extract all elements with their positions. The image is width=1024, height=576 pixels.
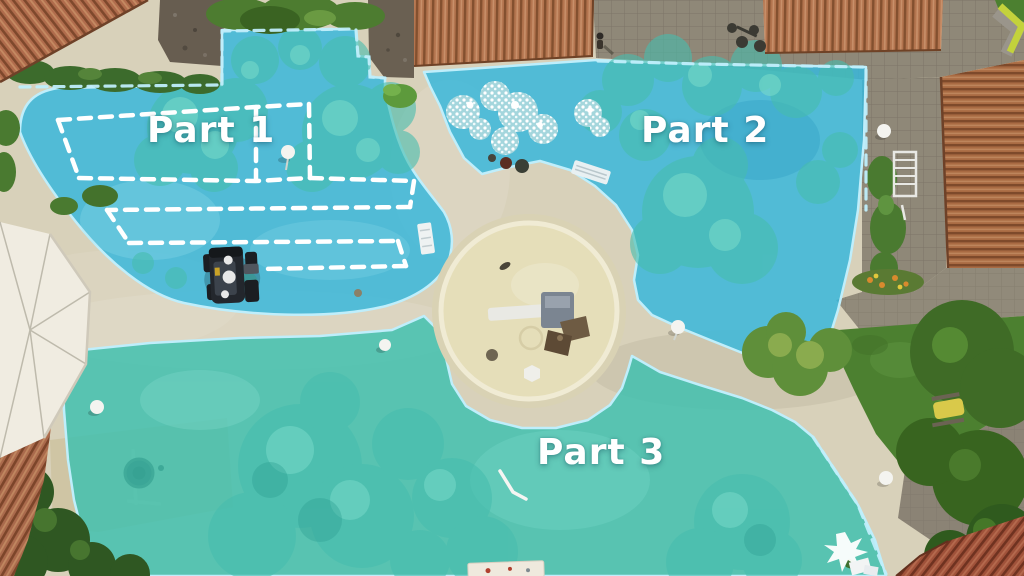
robot-mower	[203, 245, 262, 304]
flower-bed-right	[852, 269, 924, 295]
sand-playground-circle	[432, 214, 626, 408]
part3-label: Part 3	[537, 432, 665, 473]
sandbox-toy	[486, 349, 498, 361]
aerial-garden-photo: Part 1 Part 2 Part 3	[0, 0, 1024, 576]
bush-near-building	[383, 84, 417, 108]
picnic-table-bottom	[468, 561, 545, 576]
building-roof-right	[941, 60, 1024, 268]
mole-hill	[354, 289, 362, 297]
aerial-scene	[0, 0, 1024, 576]
building-roof-top-right	[763, 0, 943, 53]
part2-label: Part 2	[641, 110, 769, 151]
building-roof-top-center	[414, 0, 593, 66]
part1-label: Part 1	[147, 110, 275, 151]
